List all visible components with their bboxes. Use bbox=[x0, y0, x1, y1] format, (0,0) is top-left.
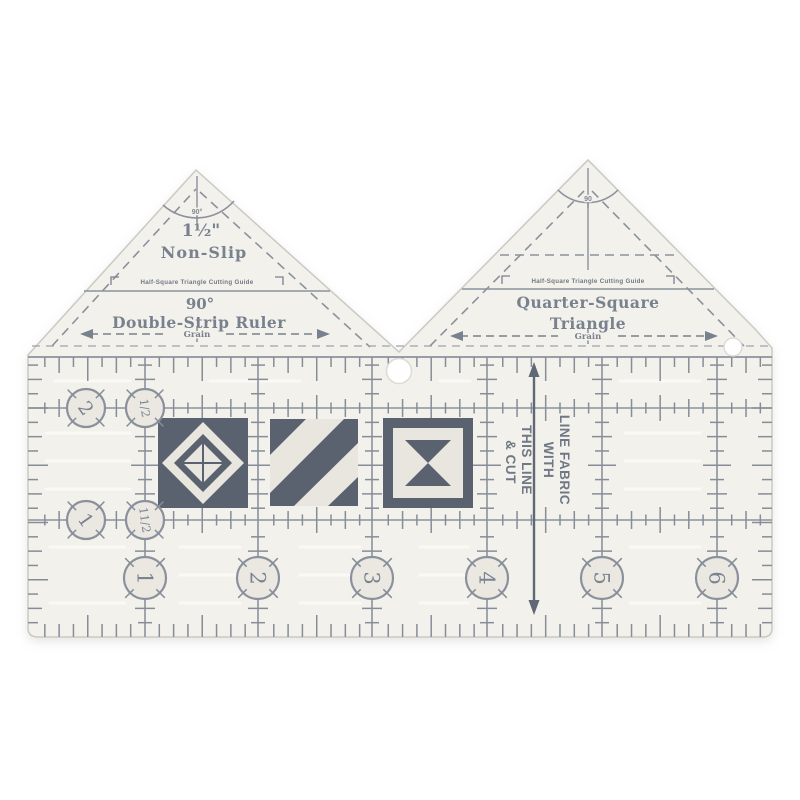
circled-number: 5 bbox=[581, 557, 623, 599]
left-size-label: 1½" bbox=[182, 221, 220, 241]
circled-number: 1 bbox=[124, 557, 166, 599]
left-cutting-guide-label: Half-Square Triangle Cutting Guide bbox=[141, 279, 254, 286]
valley-hole bbox=[387, 359, 412, 384]
scale-number: 3 bbox=[359, 571, 383, 584]
patch-hourglass-square bbox=[383, 418, 473, 508]
circled-number: 6 bbox=[696, 557, 738, 599]
right-cutting-guide-label: Half-Square Triangle Cutting Guide bbox=[532, 278, 645, 285]
right-name-line1: Quarter-Square bbox=[517, 293, 660, 312]
circled-number: 3 bbox=[351, 557, 393, 599]
scale-number: 2 bbox=[245, 571, 269, 584]
circled-number: 1 bbox=[67, 501, 105, 539]
patch-diagonal-stripes bbox=[270, 419, 358, 506]
left-angle-label: 90° bbox=[186, 295, 214, 313]
corner-hole bbox=[724, 338, 742, 356]
circled-number: 2 bbox=[67, 389, 105, 427]
right-apex-angle: 90 bbox=[584, 196, 592, 203]
scale-number: 4 bbox=[474, 571, 498, 584]
circled-number: 4 bbox=[466, 557, 508, 599]
scale-number: 6 bbox=[704, 571, 728, 584]
left-grain-label: Grain bbox=[184, 330, 211, 340]
circled-number: 1/2 bbox=[126, 389, 164, 427]
cut-line-text-2: WITH bbox=[541, 442, 556, 479]
circled-number: 2 bbox=[237, 557, 279, 599]
scale-number: 1 bbox=[132, 571, 156, 584]
scale-number: 1/2 bbox=[137, 398, 153, 418]
left-nonslip-label: Non-Slip bbox=[161, 243, 247, 262]
patch-square-in-square bbox=[158, 418, 248, 508]
cut-line-text-3: THIS LINE bbox=[519, 425, 534, 495]
cut-line-text-1: LINE FABRIC bbox=[557, 415, 572, 505]
product-photo: 90° 1½" Non-Slip Half-Square Triangle Cu… bbox=[0, 0, 800, 800]
cut-line-text-4: & CUT bbox=[503, 440, 518, 484]
quilting-ruler-photo: 90° 1½" Non-Slip Half-Square Triangle Cu… bbox=[0, 0, 800, 800]
scale-number: 5 bbox=[589, 571, 613, 584]
circled-number: 11/2 bbox=[126, 501, 164, 539]
right-grain-label: Grain bbox=[575, 332, 602, 342]
left-apex-angle: 90° bbox=[192, 208, 203, 216]
